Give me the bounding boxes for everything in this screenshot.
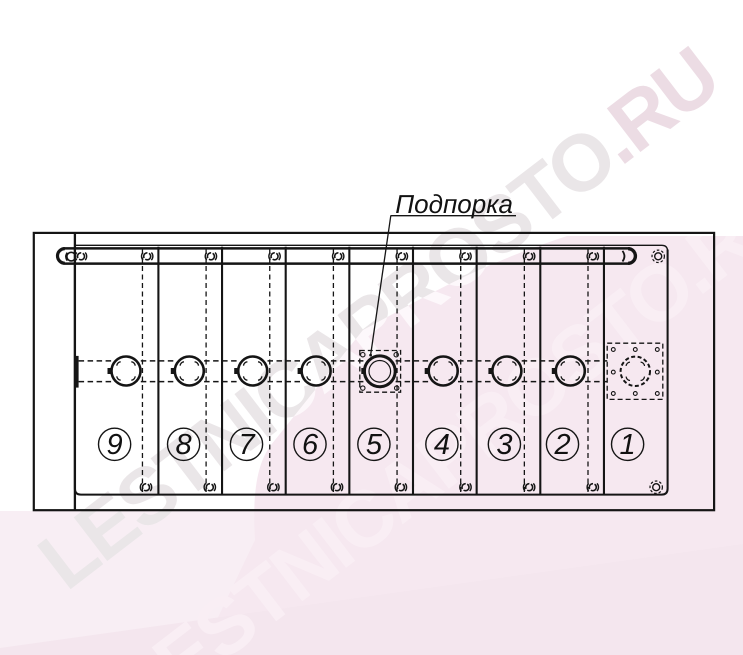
svg-text:3: 3 [496, 429, 512, 461]
svg-text:1: 1 [620, 429, 636, 461]
svg-text:6: 6 [302, 429, 319, 461]
svg-text:8: 8 [176, 429, 192, 461]
svg-text:7: 7 [238, 429, 256, 461]
svg-text:9: 9 [107, 429, 123, 461]
svg-text:4: 4 [434, 429, 450, 461]
svg-text:Подпорка: Подпорка [395, 189, 513, 219]
svg-text:5: 5 [366, 429, 383, 461]
svg-text:2: 2 [553, 429, 570, 461]
